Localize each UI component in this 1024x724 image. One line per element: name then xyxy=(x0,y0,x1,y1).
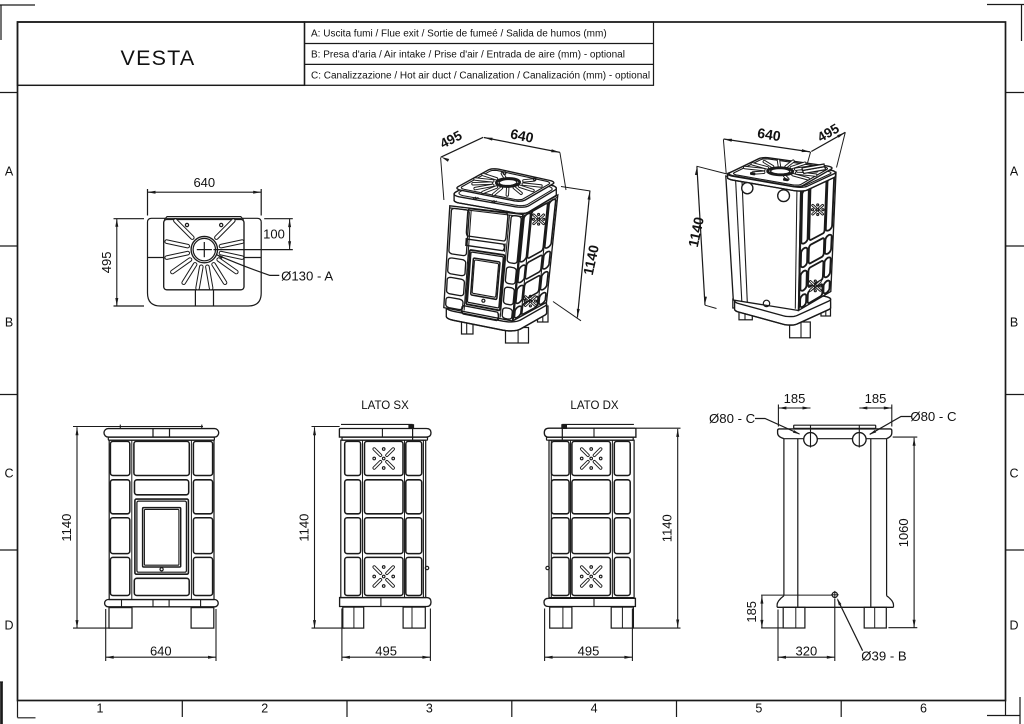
svg-text:C: C xyxy=(1009,467,1018,481)
svg-text:1140: 1140 xyxy=(580,243,602,276)
svg-text:B: B xyxy=(5,316,13,330)
svg-text:4: 4 xyxy=(591,702,598,716)
svg-text:1140: 1140 xyxy=(660,514,675,542)
svg-text:A: Uscita fumi / Flue exit / S: A: Uscita fumi / Flue exit / Sortie de f… xyxy=(311,29,607,40)
svg-text:1060: 1060 xyxy=(896,518,911,547)
svg-text:C: C xyxy=(4,467,13,481)
svg-text:C: Canalizzazione / Hot air du: C: Canalizzazione / Hot air duct / Canal… xyxy=(311,71,650,82)
svg-text:495: 495 xyxy=(578,644,600,659)
svg-text:1140: 1140 xyxy=(297,514,312,542)
svg-text:495: 495 xyxy=(815,121,842,145)
svg-text:185: 185 xyxy=(744,601,759,623)
svg-text:Ø39 - B: Ø39 - B xyxy=(861,648,907,663)
svg-text:2: 2 xyxy=(261,702,268,716)
svg-text:640: 640 xyxy=(756,125,782,144)
svg-text:B: B xyxy=(1010,316,1018,330)
svg-text:495: 495 xyxy=(99,252,114,274)
svg-text:640: 640 xyxy=(193,175,215,190)
svg-text:100: 100 xyxy=(263,226,285,241)
svg-text:1140: 1140 xyxy=(685,215,707,248)
svg-text:A: A xyxy=(1010,165,1019,179)
svg-text:5: 5 xyxy=(755,702,762,716)
svg-text:185: 185 xyxy=(865,391,887,406)
svg-text:3: 3 xyxy=(426,702,433,716)
svg-text:D: D xyxy=(4,619,13,633)
svg-text:A: A xyxy=(5,165,14,179)
svg-text:495: 495 xyxy=(375,644,397,659)
svg-text:6: 6 xyxy=(920,702,927,716)
svg-text:Ø80 - C: Ø80 - C xyxy=(910,409,957,424)
svg-text:Ø130 - A: Ø130 - A xyxy=(281,269,333,284)
svg-text:D: D xyxy=(1009,619,1018,633)
svg-text:320: 320 xyxy=(796,644,818,659)
svg-text:1: 1 xyxy=(97,702,104,716)
svg-text:1140: 1140 xyxy=(59,514,74,542)
svg-text:LATO SX: LATO SX xyxy=(361,400,409,412)
svg-text:Ø80 - C: Ø80 - C xyxy=(709,411,756,426)
svg-text:B: Presa d'aria / Air intake /: B: Presa d'aria / Air intake / Prise d'a… xyxy=(311,50,625,61)
svg-text:185: 185 xyxy=(784,391,806,406)
svg-text:LATO DX: LATO DX xyxy=(570,400,618,412)
svg-text:VESTA: VESTA xyxy=(121,46,196,70)
svg-text:640: 640 xyxy=(150,644,172,659)
